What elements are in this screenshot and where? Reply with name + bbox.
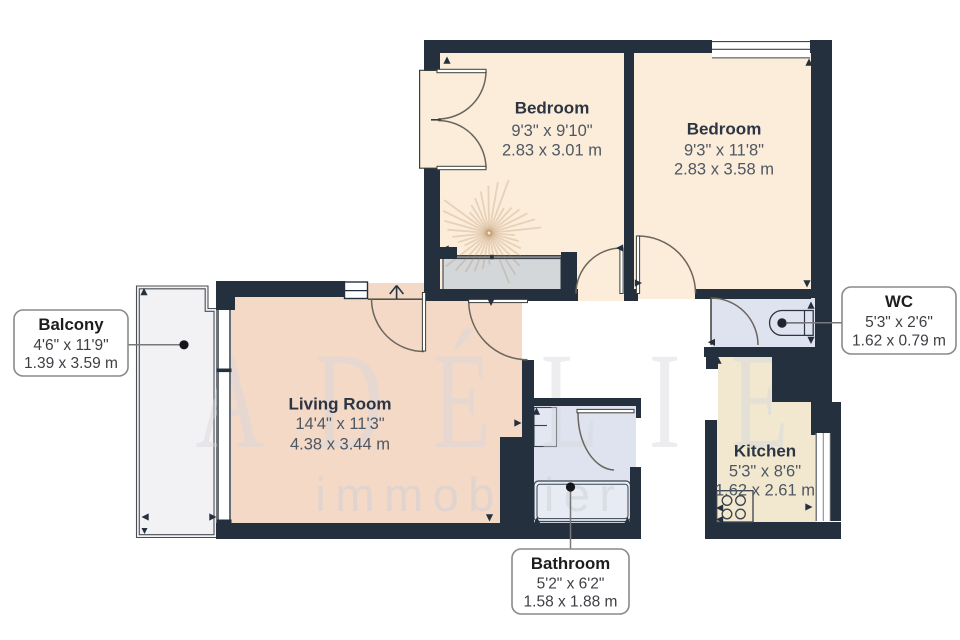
svg-text:14'4" x 11'3": 14'4" x 11'3" <box>295 415 384 433</box>
svg-text:Kitchen: Kitchen <box>734 442 796 461</box>
svg-text:Balcony: Balcony <box>38 315 104 334</box>
svg-text:1.58 x 1.88 m: 1.58 x 1.88 m <box>524 594 618 611</box>
svg-text:1.62 x 0.79 m: 1.62 x 0.79 m <box>852 333 946 350</box>
svg-text:5'3" x 8'6": 5'3" x 8'6" <box>729 463 801 481</box>
svg-text:1.39 x 3.59 m: 1.39 x 3.59 m <box>24 355 118 372</box>
svg-text:WC: WC <box>885 292 913 311</box>
svg-text:2.83 x 3.01 m: 2.83 x 3.01 m <box>502 142 602 160</box>
svg-text:Bedroom: Bedroom <box>687 120 762 139</box>
svg-text:5'3" x 2'6": 5'3" x 2'6" <box>865 314 933 331</box>
svg-text:Living Room: Living Room <box>289 395 392 414</box>
svg-text:9'3" x 9'10": 9'3" x 9'10" <box>511 122 592 140</box>
svg-text:Bedroom: Bedroom <box>515 99 590 118</box>
svg-text:5'2" x 6'2": 5'2" x 6'2" <box>537 576 605 593</box>
svg-text:Bathroom: Bathroom <box>531 554 610 573</box>
svg-text:9'3" x 11'8": 9'3" x 11'8" <box>684 142 764 160</box>
svg-text:1.62 x 2.61 m: 1.62 x 2.61 m <box>715 482 815 500</box>
svg-text:immobilier: immobilier <box>315 468 624 521</box>
svg-text:2.83 x 3.58 m: 2.83 x 3.58 m <box>674 161 774 179</box>
svg-text:4.38 x 3.44 m: 4.38 x 3.44 m <box>290 436 390 454</box>
svg-text:4'6" x 11'9": 4'6" x 11'9" <box>33 337 108 354</box>
